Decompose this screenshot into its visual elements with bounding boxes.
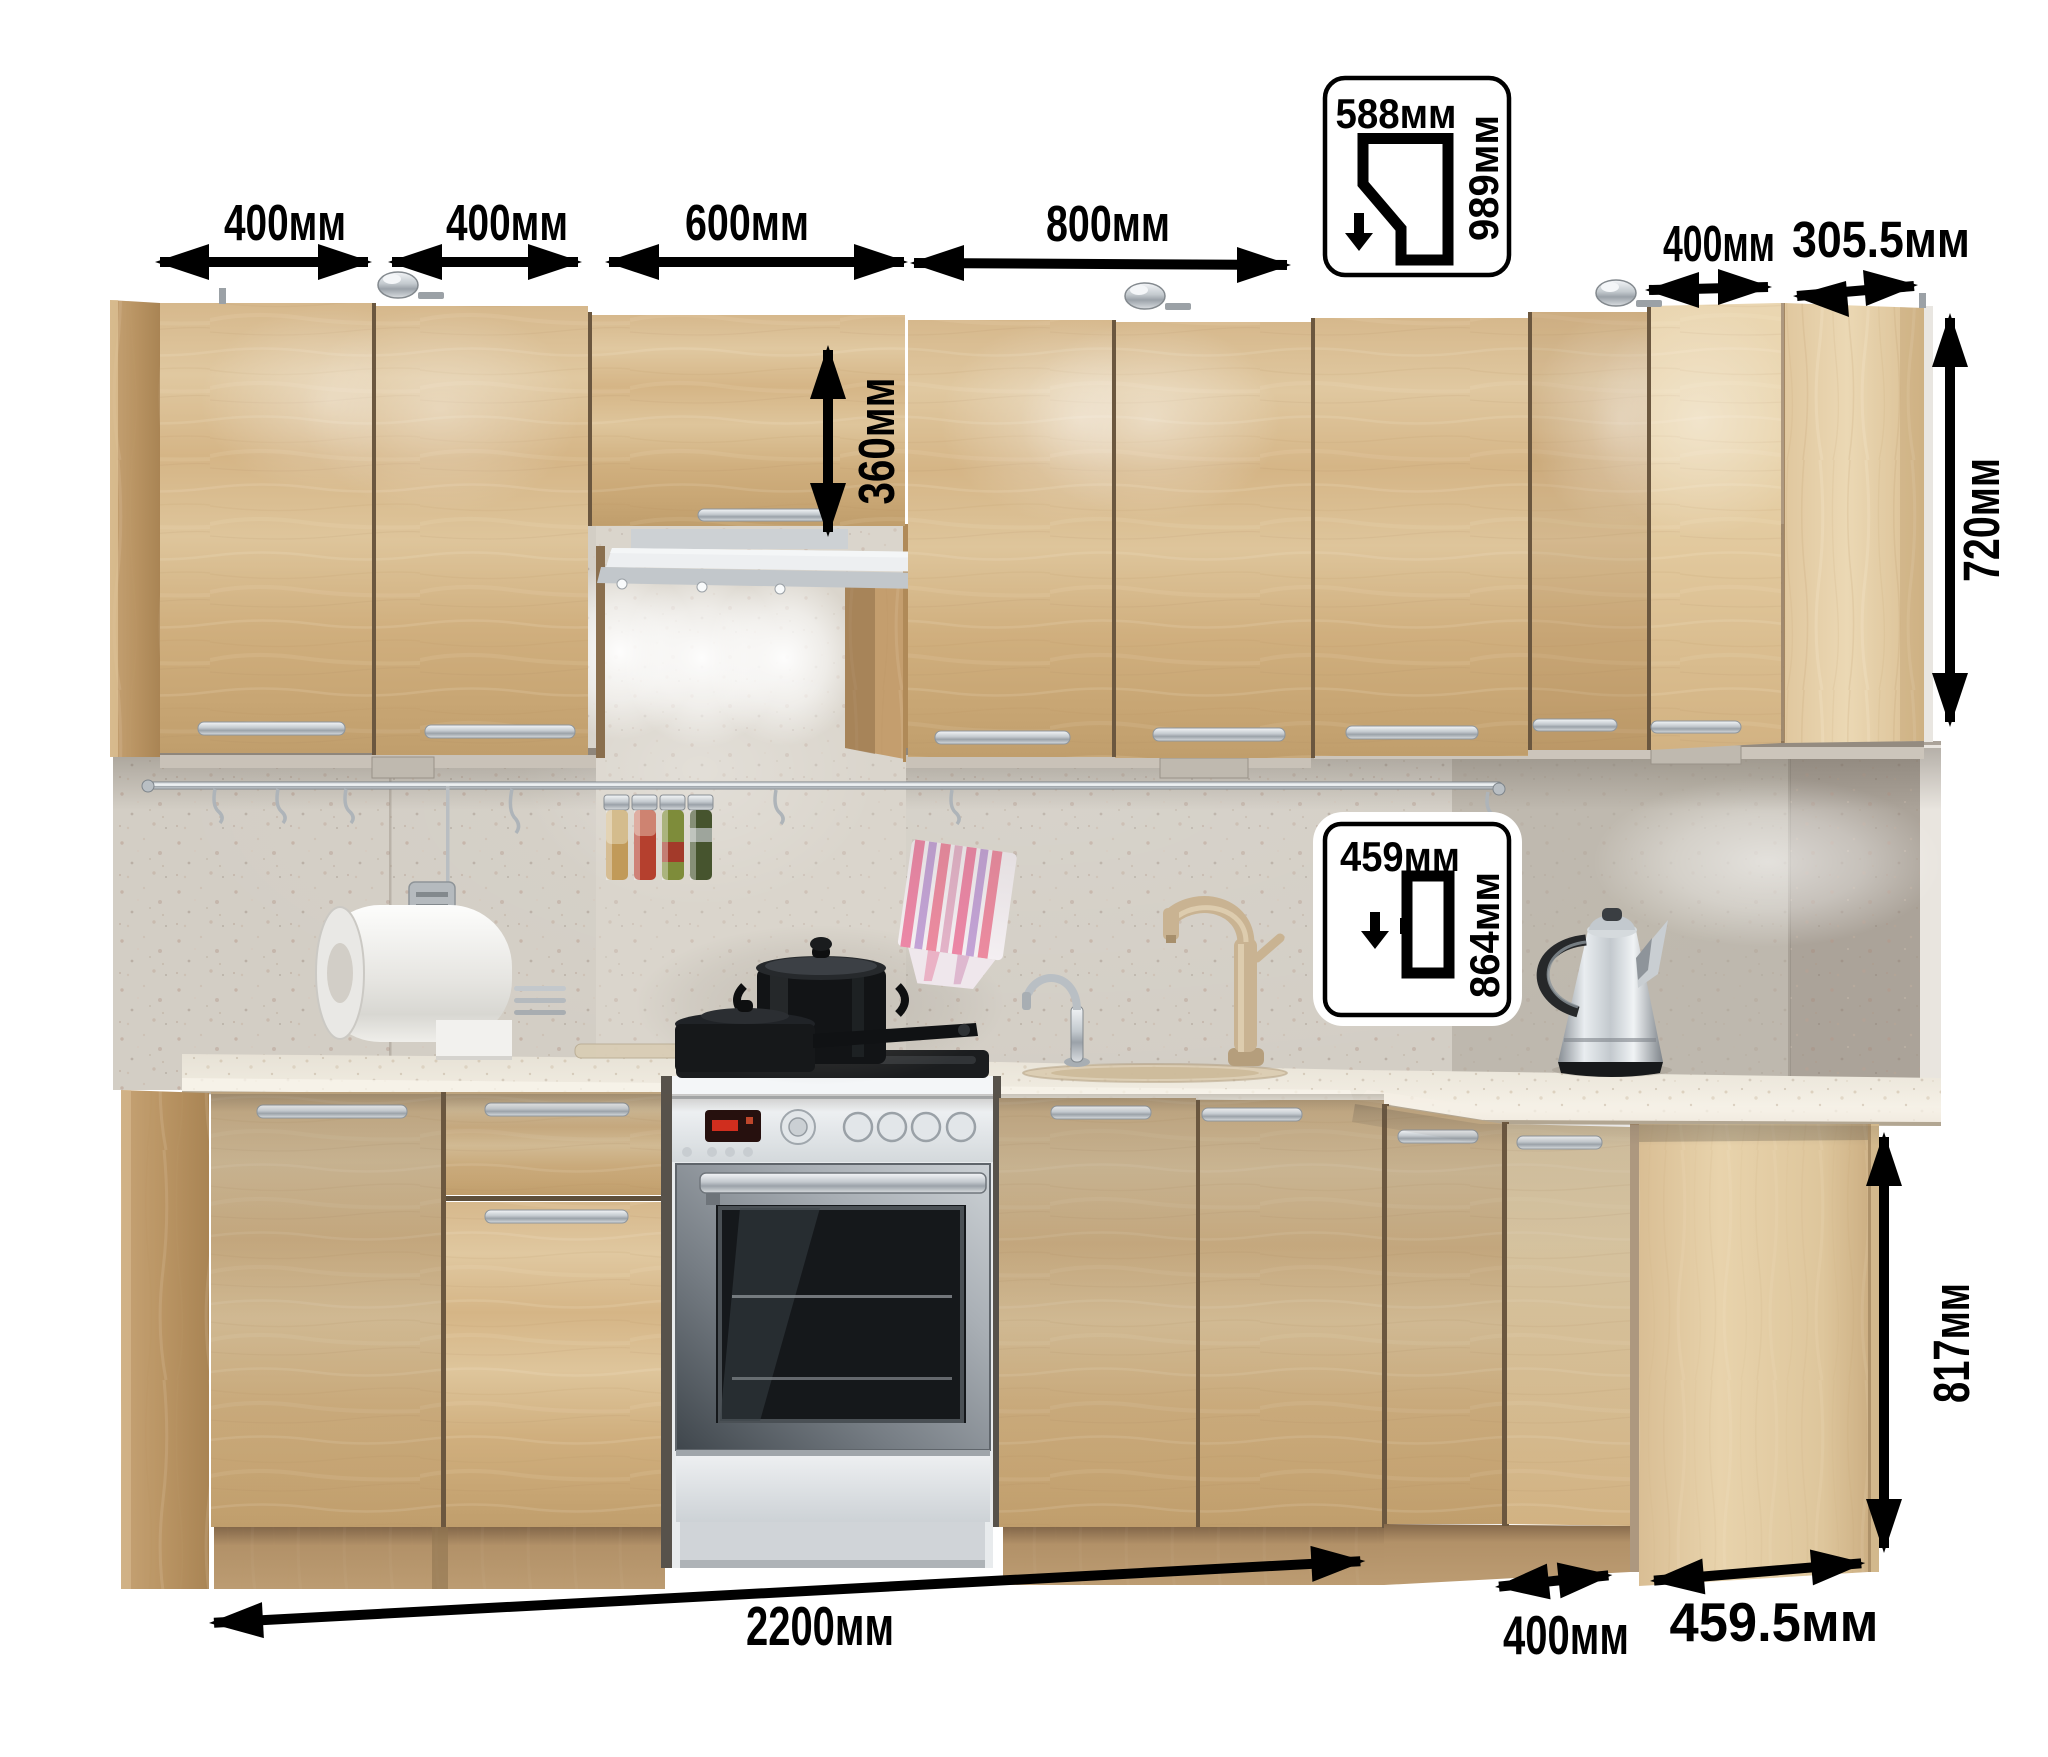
svg-text:360мм: 360мм xyxy=(848,378,905,505)
svg-text:400мм: 400мм xyxy=(1503,1604,1629,1666)
svg-text:600мм: 600мм xyxy=(685,194,809,251)
svg-text:400мм: 400мм xyxy=(446,194,568,251)
svg-text:400мм: 400мм xyxy=(224,194,346,251)
svg-text:400мм: 400мм xyxy=(1663,215,1775,272)
svg-text:588мм: 588мм xyxy=(1336,90,1457,137)
svg-text:817мм: 817мм xyxy=(1923,1283,1980,1403)
svg-text:800мм: 800мм xyxy=(1046,195,1170,252)
svg-text:2200мм: 2200мм xyxy=(746,1595,894,1657)
svg-text:864мм: 864мм xyxy=(1461,872,1508,998)
svg-text:989мм: 989мм xyxy=(1460,115,1507,241)
svg-text:720мм: 720мм xyxy=(1953,458,2010,582)
svg-text:459.5мм: 459.5мм xyxy=(1670,1591,1879,1653)
svg-text:305.5мм: 305.5мм xyxy=(1792,211,1970,268)
